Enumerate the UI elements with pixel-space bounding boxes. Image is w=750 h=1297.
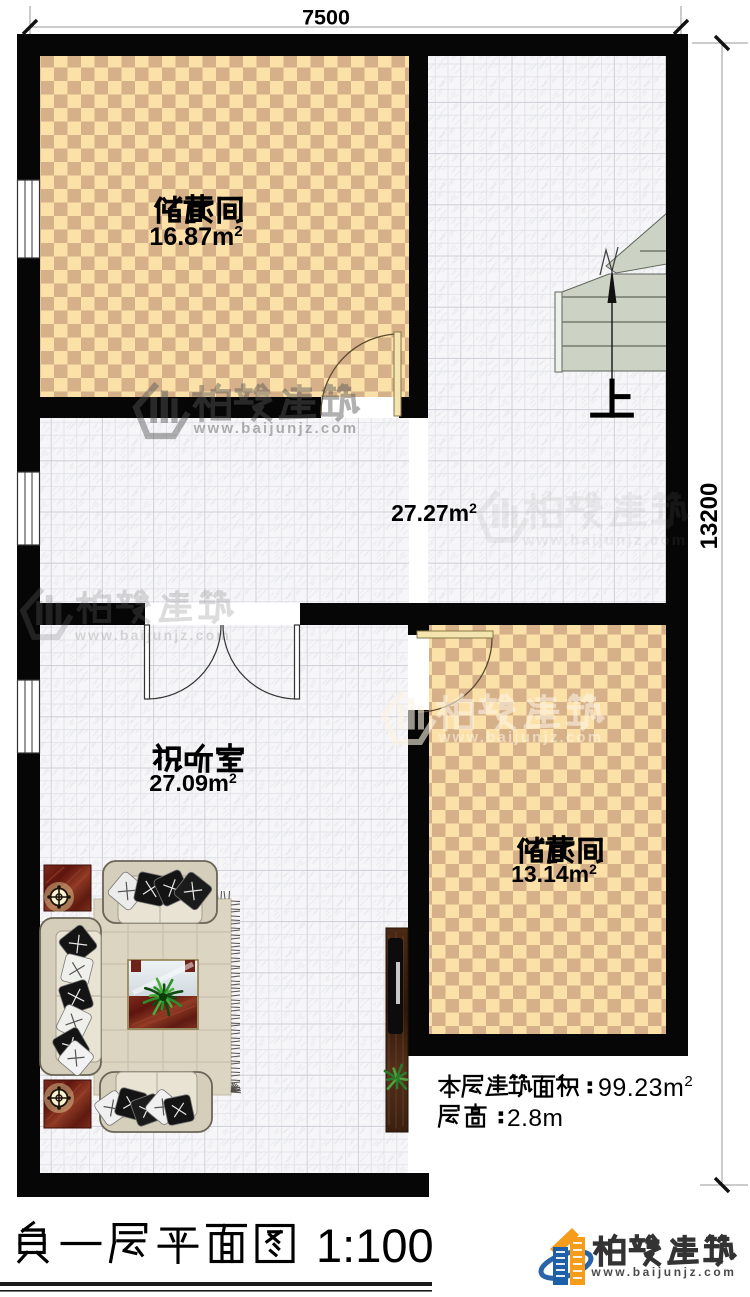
svg-text:www.baijunjz.com: www.baijunjz.com: [74, 627, 231, 643]
svg-text:1:100: 1:100: [316, 1219, 434, 1272]
svg-text:27.09m2: 27.09m2: [149, 770, 237, 796]
svg-text:99.23m2: 99.23m2: [598, 1073, 693, 1102]
svg-text:www.baijunjz.com: www.baijunjz.com: [193, 420, 359, 437]
svg-text:www.baijunjz.com: www.baijunjz.com: [522, 532, 688, 549]
svg-text:13200: 13200: [696, 483, 723, 550]
svg-text:7500: 7500: [302, 6, 350, 30]
svg-text:2.8m: 2.8m: [507, 1105, 563, 1132]
svg-text:www.baijunjz.com: www.baijunjz.com: [438, 729, 604, 746]
svg-text:13.14m2: 13.14m2: [511, 861, 597, 887]
svg-text:16.87m2: 16.87m2: [149, 223, 242, 251]
svg-text:27.27m2: 27.27m2: [391, 500, 477, 526]
svg-text:www.baijunjz.com: www.baijunjz.com: [590, 1265, 736, 1279]
